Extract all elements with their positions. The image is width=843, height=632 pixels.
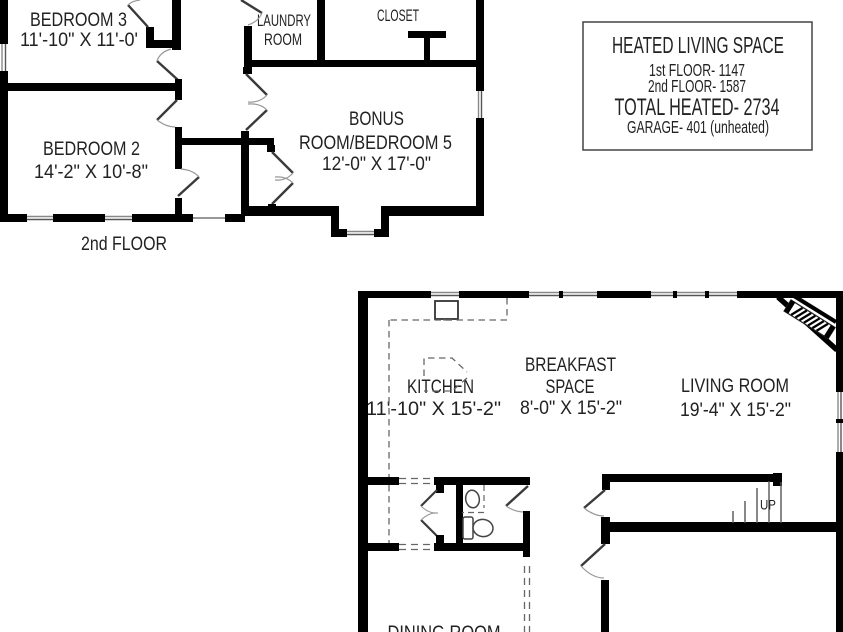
svg-text:DINING ROOM: DINING ROOM xyxy=(388,623,501,632)
svg-text:ROOM/BEDROOM 5: ROOM/BEDROOM 5 xyxy=(299,133,452,154)
svg-text:14'-2" X 10'-8": 14'-2" X 10'-8" xyxy=(34,162,148,183)
svg-text:BONUS: BONUS xyxy=(349,109,404,130)
svg-text:2nd FLOOR: 2nd FLOOR xyxy=(81,234,167,255)
svg-text:BEDROOM 2: BEDROOM 2 xyxy=(43,139,140,160)
svg-text:19'-4" X 15'-2": 19'-4" X 15'-2" xyxy=(680,400,791,421)
svg-text:BREAKFAST: BREAKFAST xyxy=(525,355,616,376)
svg-text:HEATED LIVING SPACE: HEATED LIVING SPACE xyxy=(612,32,784,58)
svg-text:UP: UP xyxy=(760,498,776,513)
svg-text:8'-0" X 15'-2": 8'-0" X 15'-2" xyxy=(520,398,622,419)
svg-text:LAUNDRY: LAUNDRY xyxy=(257,12,311,30)
svg-text:12'-0" X 17'-0": 12'-0" X 17'-0" xyxy=(322,154,431,175)
svg-text:11'-10" X 15'-2": 11'-10" X 15'-2" xyxy=(366,399,501,420)
svg-text:CLOSET: CLOSET xyxy=(377,7,419,25)
svg-text:BEDROOM 3: BEDROOM 3 xyxy=(30,10,127,31)
svg-text:GARAGE- 401 (unheated): GARAGE- 401 (unheated) xyxy=(627,117,769,137)
svg-text:2nd FLOOR- 1587: 2nd FLOOR- 1587 xyxy=(648,76,746,96)
svg-text:SPACE: SPACE xyxy=(546,377,595,398)
svg-text:LIVING ROOM: LIVING ROOM xyxy=(681,376,789,397)
svg-text:ROOM: ROOM xyxy=(264,31,302,49)
svg-text:11'-10" X 11'-0': 11'-10" X 11'-0' xyxy=(20,30,138,51)
